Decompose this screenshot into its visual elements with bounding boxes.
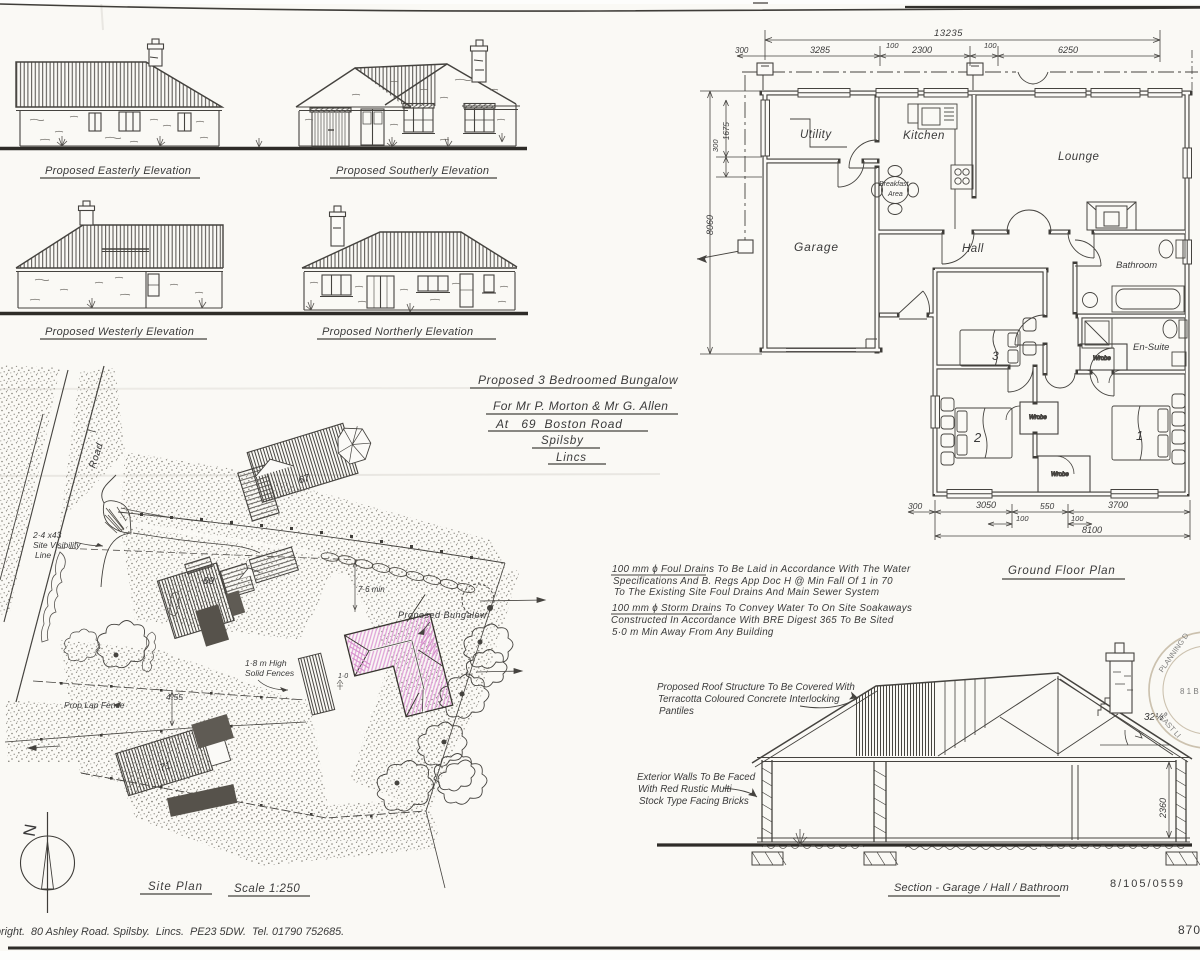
svg-text:1·0: 1·0 (338, 673, 348, 680)
svg-text:Lounge: Lounge (1058, 151, 1099, 163)
svg-text:Proposed Westerly Elevation: Proposed Westerly Elevation (45, 326, 194, 338)
svg-text:Hall: Hall (962, 243, 984, 255)
svg-text:Wrobe: Wrobe (1029, 415, 1047, 421)
svg-text:300: 300 (908, 501, 922, 511)
svg-text:3: 3 (992, 349, 999, 363)
svg-text:Wrobe: Wrobe (1051, 472, 1069, 478)
svg-text:300: 300 (711, 139, 720, 152)
svg-text:Solid Fences: Solid Fences (245, 668, 295, 678)
svg-text:Constructed In Accordance With: Constructed In Accordance With BRE Diges… (611, 615, 894, 626)
svg-text:For Mr P. Morton & Mr G. Allen: For Mr P. Morton & Mr G. Allen (493, 399, 668, 413)
svg-text:2300: 2300 (911, 45, 932, 55)
svg-text:300: 300 (735, 46, 749, 55)
svg-text:Ground Floor Plan: Ground Floor Plan (1008, 565, 1116, 577)
svg-text:870: 870 (1178, 923, 1200, 937)
svg-text:Bathroom: Bathroom (1116, 260, 1157, 271)
svg-text:Site Visibility: Site Visibility (33, 540, 81, 550)
svg-text:Exterior Walls To Be Faced: Exterior Walls To Be Faced (637, 772, 756, 783)
svg-text:Terracotta Coloured Concrete I: Terracotta Coloured Concrete Interlockin… (658, 694, 840, 705)
svg-text:2: 2 (973, 430, 982, 445)
svg-text:Wrobe: Wrobe (1093, 356, 1111, 362)
svg-text:bright. 80 Ashley Road. Spils: bright. 80 Ashley Road. Spilsby. Lincs. … (0, 926, 344, 938)
svg-text:Proposed Southerly Elevation: Proposed Southerly Elevation (336, 165, 489, 177)
svg-text:8/105/0559: 8/105/0559 (1110, 878, 1185, 890)
svg-text:1675: 1675 (722, 122, 731, 140)
svg-text:7·6 min: 7·6 min (358, 585, 385, 594)
svg-text:2·4 x43: 2·4 x43 (32, 530, 62, 540)
svg-text:100: 100 (1016, 514, 1029, 523)
svg-text:69: 69 (203, 576, 215, 587)
svg-text:1: 1 (1136, 428, 1143, 443)
svg-text:With Red Rustic Multi: With Red Rustic Multi (638, 784, 732, 795)
svg-text:3700: 3700 (1108, 500, 1128, 510)
svg-text:Kitchen: Kitchen (903, 130, 945, 142)
svg-text:To The Existing Site Foul Drai: To The Existing Site Foul Drains And Mai… (614, 587, 879, 598)
svg-text:5·0 m Min Away From Any Buildi: 5·0 m Min Away From Any Building (612, 627, 774, 638)
svg-text:4·55: 4·55 (166, 692, 183, 702)
svg-text:En-Suite: En-Suite (1133, 342, 1169, 353)
svg-text:Pantiles: Pantiles (659, 706, 694, 717)
svg-text:Lincs: Lincs (556, 452, 587, 464)
svg-text:Breakfast: Breakfast (879, 181, 910, 188)
svg-text:Proposed 3 Bedroomed Bungalow: Proposed 3 Bedroomed Bungalow (478, 373, 679, 387)
svg-text:100: 100 (886, 41, 899, 50)
svg-text:Specifications And B. Regs App: Specifications And B. Regs App Doc H @ M… (613, 576, 893, 587)
svg-text:Section - Garage / Hall / Bath: Section - Garage / Hall / Bathroom (894, 882, 1069, 894)
svg-text:2360: 2360 (1158, 798, 1168, 819)
svg-text:At 69 Boston Road: At 69 Boston Road (495, 417, 623, 431)
svg-text:Site Plan: Site Plan (148, 881, 203, 893)
svg-text:100 mm ϕ Storm Drains To Conve: 100 mm ϕ Storm Drains To Convey Water To… (612, 603, 912, 614)
svg-text:6250: 6250 (1058, 45, 1078, 55)
svg-text:13235: 13235 (934, 28, 963, 39)
svg-text:3285: 3285 (810, 45, 831, 55)
svg-text:Proposed Roof Structure To Be: Proposed Roof Structure To Be Covered Wi… (657, 682, 855, 693)
svg-text:Area: Area (887, 191, 903, 198)
svg-text:550: 550 (1040, 501, 1054, 511)
svg-text:8100: 8100 (1082, 525, 1102, 535)
svg-text:3050: 3050 (976, 500, 996, 510)
svg-text:100 mm ϕ Foul Drains To Be Lai: 100 mm ϕ Foul Drains To Be Laid in Accor… (612, 564, 911, 575)
svg-text:Scale 1:250: Scale 1:250 (234, 883, 300, 895)
svg-text:100: 100 (1071, 514, 1084, 523)
svg-text:Utility: Utility (800, 129, 832, 141)
svg-text:Line: Line (35, 550, 51, 560)
svg-text:Garage: Garage (794, 240, 839, 254)
svg-text:8060: 8060 (705, 215, 715, 235)
svg-text:8 1 B: 8 1 B (1180, 687, 1199, 696)
svg-text:Stock Type Facing Bricks: Stock Type Facing Bricks (639, 796, 749, 807)
svg-text:Proposed Easterly Elevation: Proposed Easterly Elevation (45, 165, 191, 177)
svg-text:1·8 m High: 1·8 m High (245, 658, 287, 668)
svg-text:Proposed Northerly Elevation: Proposed Northerly Elevation (322, 326, 473, 338)
svg-text:100: 100 (984, 41, 997, 50)
svg-text:Spilsby: Spilsby (541, 435, 584, 447)
svg-text:Proposed Bungalow: Proposed Bungalow (398, 610, 487, 620)
